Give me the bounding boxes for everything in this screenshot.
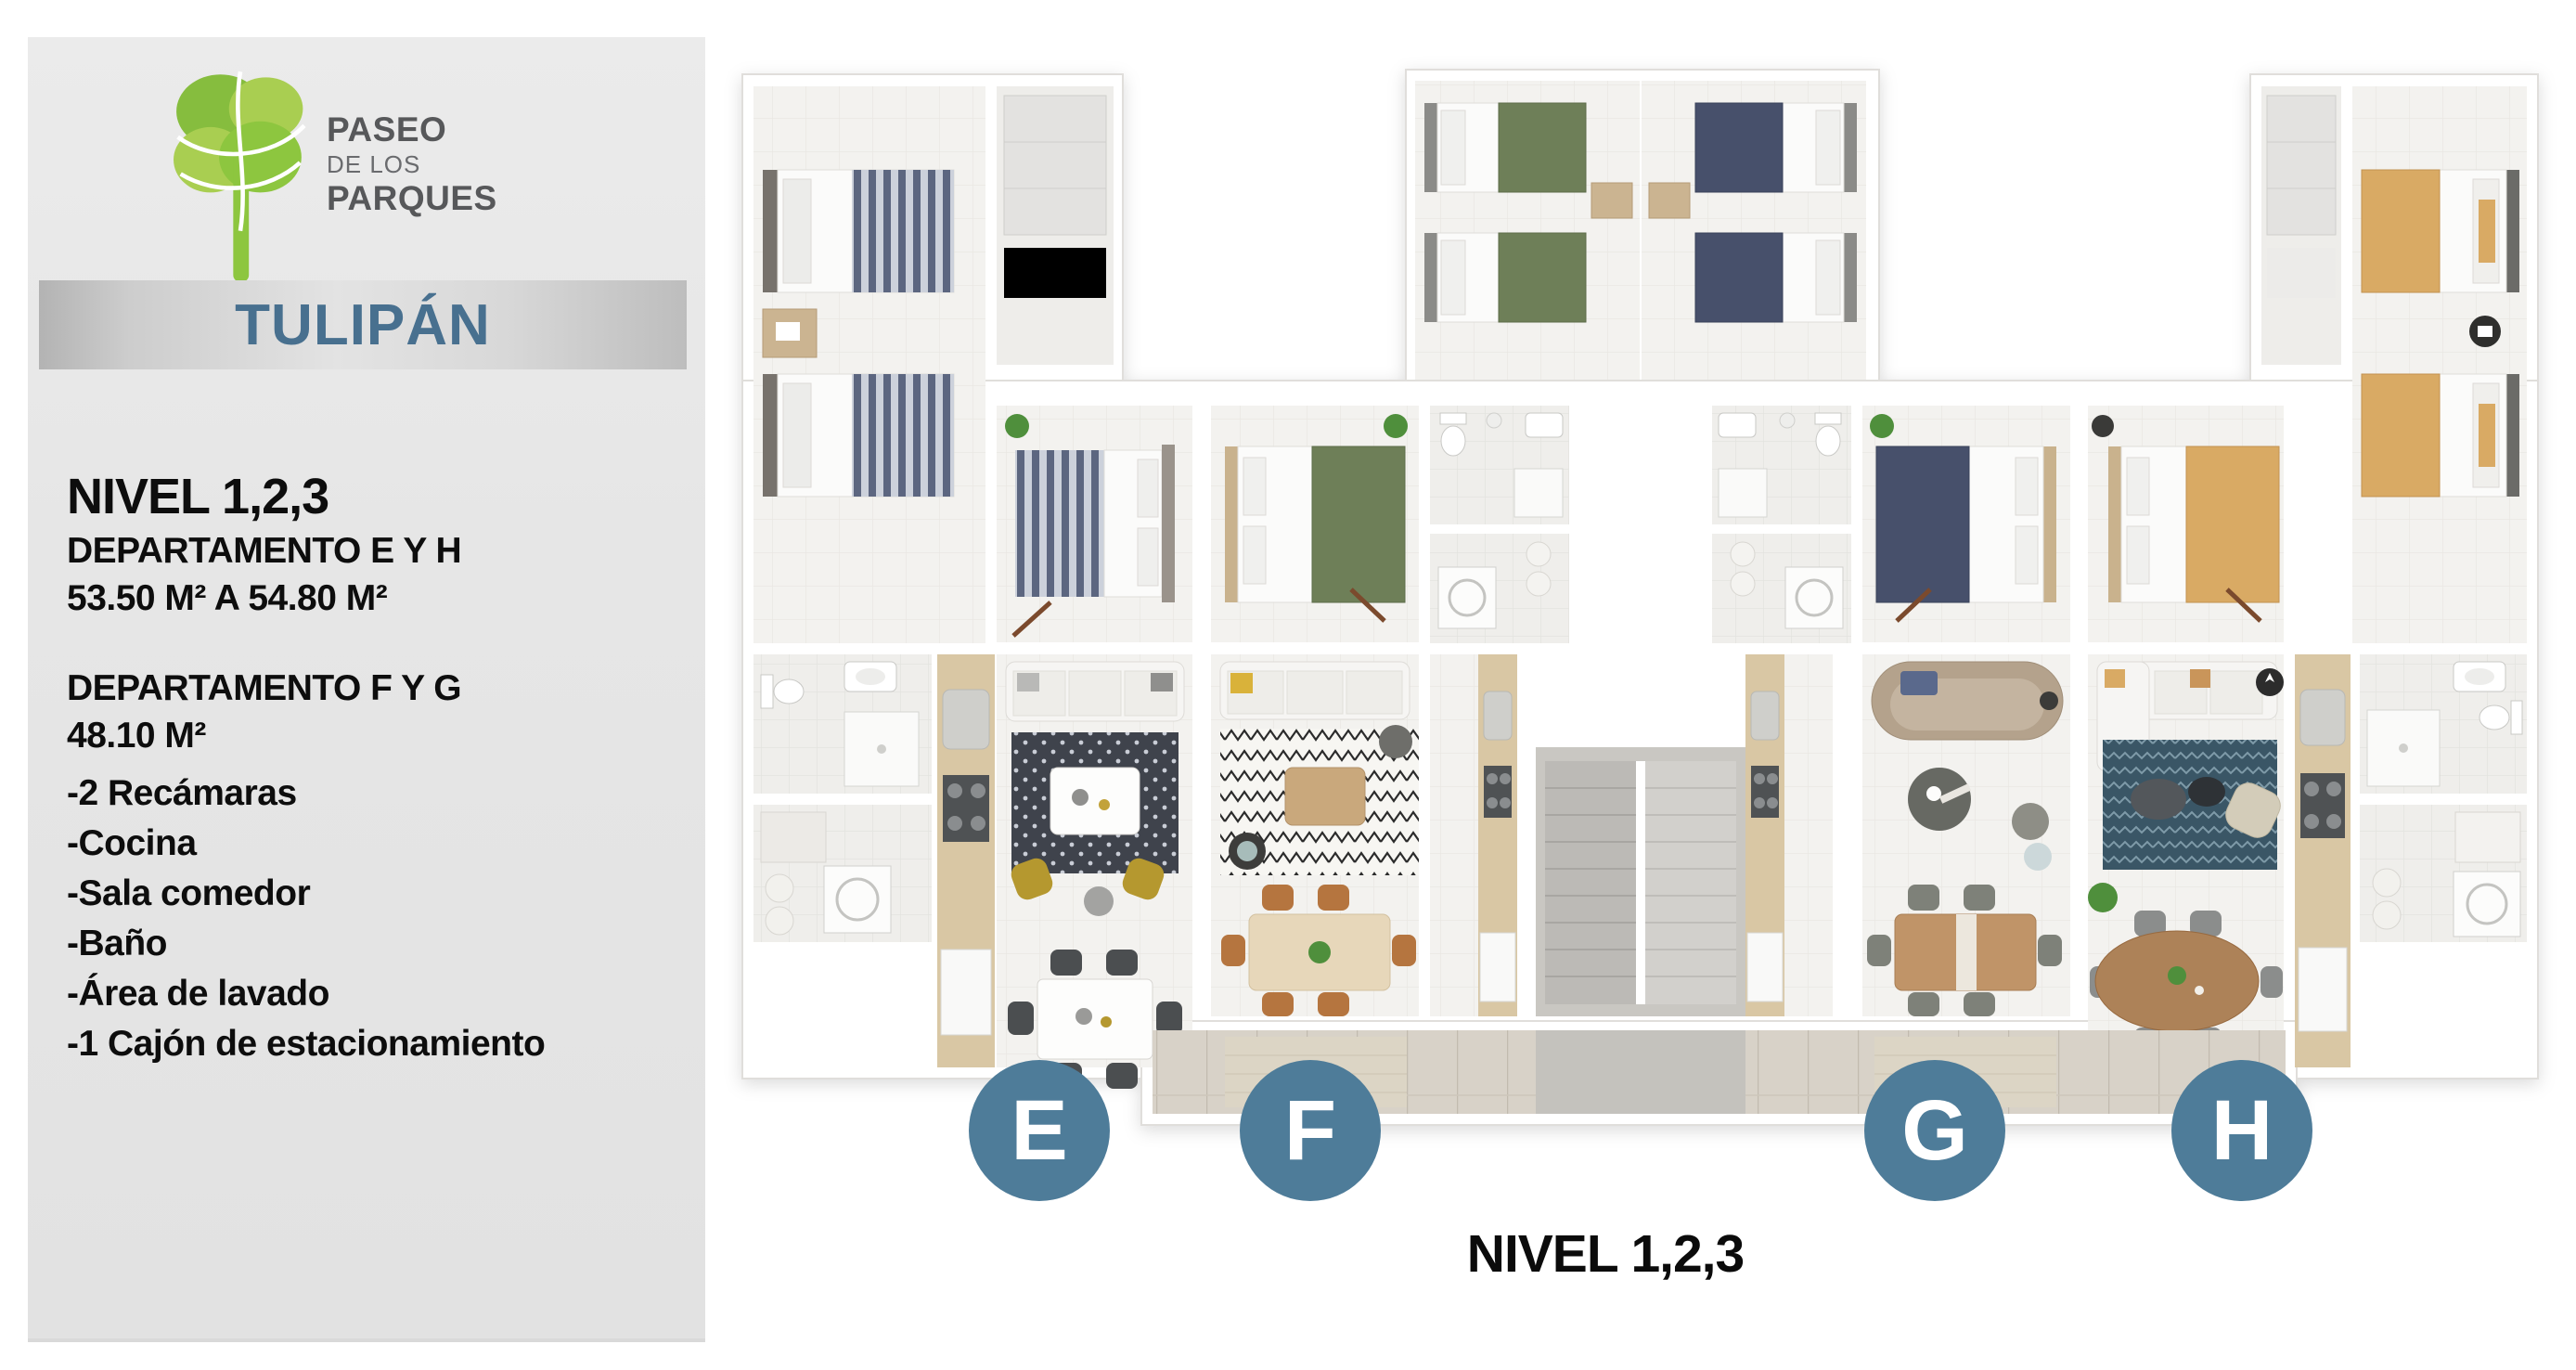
sink xyxy=(1526,413,1563,437)
washer xyxy=(1785,567,1843,628)
unit-label: E xyxy=(1011,1082,1067,1180)
wardrobe xyxy=(2267,96,2336,235)
level-title: NIVEL 1,2,3 xyxy=(67,468,328,525)
basket xyxy=(1526,572,1551,596)
toilet xyxy=(1815,413,1841,456)
kitchen-f xyxy=(1430,654,1517,1016)
shower xyxy=(844,712,919,786)
curved-sofa xyxy=(1872,662,2063,740)
cushion xyxy=(2024,843,2052,871)
feature-item: -Sala comedor xyxy=(67,869,545,919)
wardrobe xyxy=(1004,96,1106,235)
spec-title: DEPARTAMENTO F Y G xyxy=(67,665,461,712)
laundry-counter xyxy=(761,812,826,862)
feature-item: -Baño xyxy=(67,919,545,969)
pendant-lamp xyxy=(1780,413,1795,428)
basket xyxy=(2373,869,2401,897)
basket xyxy=(1731,572,1755,596)
feature-item: -Cocina xyxy=(67,819,545,869)
fridge xyxy=(1747,933,1783,1002)
brand-logo: PASEO DE LOS PARQUES xyxy=(167,63,497,288)
book xyxy=(776,322,800,341)
concrete-path xyxy=(1536,1030,1745,1114)
coffee-table xyxy=(1050,768,1140,834)
kitchen-sink xyxy=(2300,690,2345,745)
coffee-table xyxy=(1908,768,1971,831)
sink xyxy=(2454,662,2505,691)
spec-departamento-e-h: DEPARTAMENTO E Y H 53.50 M² A 54.80 M² xyxy=(67,527,461,622)
unit-e xyxy=(753,86,1192,1089)
laundry-counter xyxy=(2455,812,2520,862)
toilet xyxy=(1440,413,1466,456)
flyer-page: PASEO DE LOS PARQUES TULIPÁN NIVEL 1,2,3… xyxy=(0,0,2576,1370)
plant xyxy=(1005,414,1029,438)
shelf xyxy=(2267,248,2336,298)
basket xyxy=(766,874,793,902)
tree-logo-icon xyxy=(167,63,314,288)
stove xyxy=(2300,773,2345,838)
coffee-table xyxy=(2131,779,2186,820)
kitchen-sink xyxy=(943,690,989,749)
kitchen-sink xyxy=(1751,691,1779,740)
washer xyxy=(1438,567,1496,628)
pouf xyxy=(2012,803,2049,840)
plant xyxy=(2088,883,2118,912)
sofa xyxy=(1220,662,1410,719)
twin-bed xyxy=(1695,233,1857,322)
fridge xyxy=(941,950,991,1035)
plan-caption: NIVEL 1,2,3 xyxy=(1327,1223,1884,1285)
building-name-banner: TULIPÁN xyxy=(39,280,687,369)
shower xyxy=(1719,469,1767,517)
unit-label: H xyxy=(2211,1082,2273,1180)
info-panel: PASEO DE LOS PARQUES TULIPÁN NIVEL 1,2,3… xyxy=(28,37,705,1342)
kitchen-e xyxy=(937,654,995,1067)
twin-bed xyxy=(2362,374,2519,497)
sink xyxy=(1719,413,1756,437)
washer xyxy=(824,866,891,933)
floor-plan xyxy=(705,51,2576,1221)
floor-lamp xyxy=(2040,691,2058,710)
kitchen-h xyxy=(2295,654,2351,1067)
staircase xyxy=(1536,747,1745,1016)
double-bed xyxy=(1225,446,1405,602)
kitchen-sink xyxy=(1484,691,1512,740)
plant xyxy=(1870,414,1894,438)
twin-bed xyxy=(1695,103,1857,192)
compass-icon xyxy=(2256,668,2284,696)
double-bed xyxy=(2108,446,2279,602)
side-table xyxy=(1084,886,1114,916)
twin-bed xyxy=(763,170,954,292)
brand-line-paseo: PASEO xyxy=(327,111,497,149)
basket xyxy=(766,907,793,935)
feature-item: -Área de lavado xyxy=(67,969,545,1019)
brand-line-de-los: DE LOS xyxy=(327,149,497,180)
feature-item: -2 Recámaras xyxy=(67,769,545,819)
spec-departamento-f-g: DEPARTAMENTO F Y G 48.10 M² xyxy=(67,665,461,759)
spec-area: 53.50 M² A 54.80 M² xyxy=(67,575,461,622)
basket xyxy=(1526,542,1551,566)
washer xyxy=(2454,872,2520,937)
unit-badge-g: G xyxy=(1864,1060,2005,1201)
basket xyxy=(1731,542,1755,566)
sofa xyxy=(1006,662,1184,721)
unit-label: G xyxy=(1901,1082,1968,1180)
twin-bed xyxy=(1424,233,1586,322)
feature-item: -1 Cajón de estacionamiento xyxy=(67,1019,545,1069)
stair-flight-up xyxy=(1645,761,1736,1004)
spec-area: 48.10 M² xyxy=(67,712,461,759)
basket xyxy=(2373,901,2401,929)
pendant-lamp xyxy=(1487,413,1501,428)
building-name: TULIPÁN xyxy=(235,292,491,358)
side-table xyxy=(1379,725,1412,758)
brand-line-parques: PARQUES xyxy=(327,180,497,217)
coffee-table xyxy=(2188,777,2225,807)
double-bed xyxy=(1015,445,1175,602)
plant xyxy=(1384,414,1408,438)
sink xyxy=(844,662,896,691)
unit-badge-h: H xyxy=(2171,1060,2312,1201)
unit-label: F xyxy=(1284,1082,1336,1180)
table-runner xyxy=(1956,914,1977,990)
shelf xyxy=(1004,248,1106,298)
unit-badge-e: E xyxy=(969,1060,1110,1201)
twin-bed xyxy=(1424,103,1586,192)
nightstand xyxy=(1591,183,1632,218)
double-bed xyxy=(1876,446,2056,602)
fridge xyxy=(1480,933,1515,1002)
round-stool xyxy=(2092,415,2114,437)
kitchen-g xyxy=(1745,654,1833,1016)
stove xyxy=(943,775,989,842)
spec-title: DEPARTAMENTO E Y H xyxy=(67,527,461,575)
stove xyxy=(1484,766,1512,818)
brand-name: PASEO DE LOS PARQUES xyxy=(327,111,497,217)
stair-rail xyxy=(1636,761,1645,1004)
feature-list: -2 Recámaras -Cocina -Sala comedor -Baño… xyxy=(67,769,545,1069)
nightstand xyxy=(1649,183,1690,218)
stair-flight-down xyxy=(1545,761,1636,1004)
coffee-table xyxy=(1285,768,1365,825)
stove xyxy=(1751,766,1779,818)
shower xyxy=(1514,469,1563,517)
fridge xyxy=(2299,948,2347,1031)
twin-bed xyxy=(763,374,954,497)
twin-bed xyxy=(2362,170,2519,292)
unit-badge-f: F xyxy=(1240,1060,1381,1201)
